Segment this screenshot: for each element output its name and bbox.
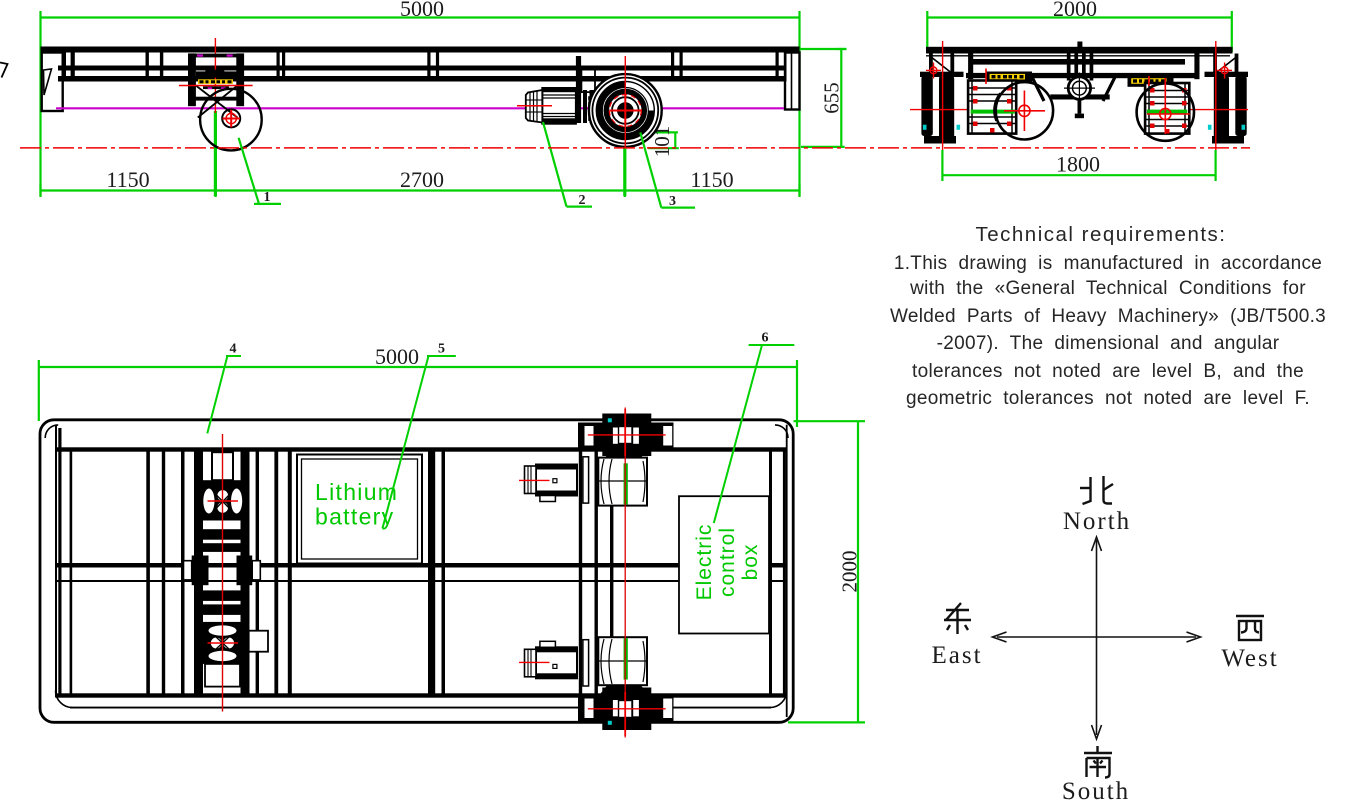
- svg-text:-2007). The dimensional and a: -2007). The dimensional and angular: [937, 333, 1280, 354]
- svg-text:East: East: [931, 642, 982, 669]
- svg-text:South: South: [1062, 778, 1130, 801]
- svg-text:1: 1: [264, 190, 271, 205]
- svg-text:1800: 1800: [1056, 152, 1100, 177]
- svg-text:Welded Parts of Heavy Machiner: Welded Parts of Heavy Machinery» (JB/T50…: [890, 306, 1326, 327]
- svg-text:box: box: [739, 544, 762, 581]
- svg-text:Technical requirements:: Technical requirements:: [976, 223, 1227, 246]
- svg-text:5000: 5000: [400, 0, 444, 21]
- svg-text:3: 3: [669, 194, 676, 209]
- svg-text:1150: 1150: [690, 167, 733, 192]
- svg-text:4: 4: [230, 342, 237, 357]
- svg-text:2000: 2000: [838, 551, 862, 593]
- svg-text:Lithium: Lithium: [315, 479, 398, 505]
- svg-text:with the «General Technical C: with the «General Technical Conditions f…: [909, 278, 1306, 299]
- svg-text:geometric tolerances not noted: geometric tolerances not noted are level…: [906, 388, 1310, 409]
- svg-text:tolerances not noted are level: tolerances not noted are level B, and th…: [912, 361, 1304, 382]
- svg-text:6: 6: [762, 331, 769, 346]
- svg-text:control: control: [716, 527, 739, 597]
- svg-text:655: 655: [820, 82, 844, 114]
- svg-text:Electric: Electric: [693, 524, 716, 601]
- svg-text:2000: 2000: [1053, 0, 1097, 21]
- svg-text:West: West: [1221, 645, 1278, 672]
- svg-text:1150: 1150: [106, 167, 149, 192]
- svg-text:5000: 5000: [375, 344, 419, 369]
- svg-text:2700: 2700: [400, 167, 444, 192]
- svg-text:North: North: [1063, 508, 1131, 535]
- svg-text:2: 2: [579, 193, 586, 208]
- svg-text:5: 5: [438, 342, 445, 357]
- svg-text:1.This drawing is manufactured: 1.This drawing is manufactured in accord…: [894, 253, 1322, 274]
